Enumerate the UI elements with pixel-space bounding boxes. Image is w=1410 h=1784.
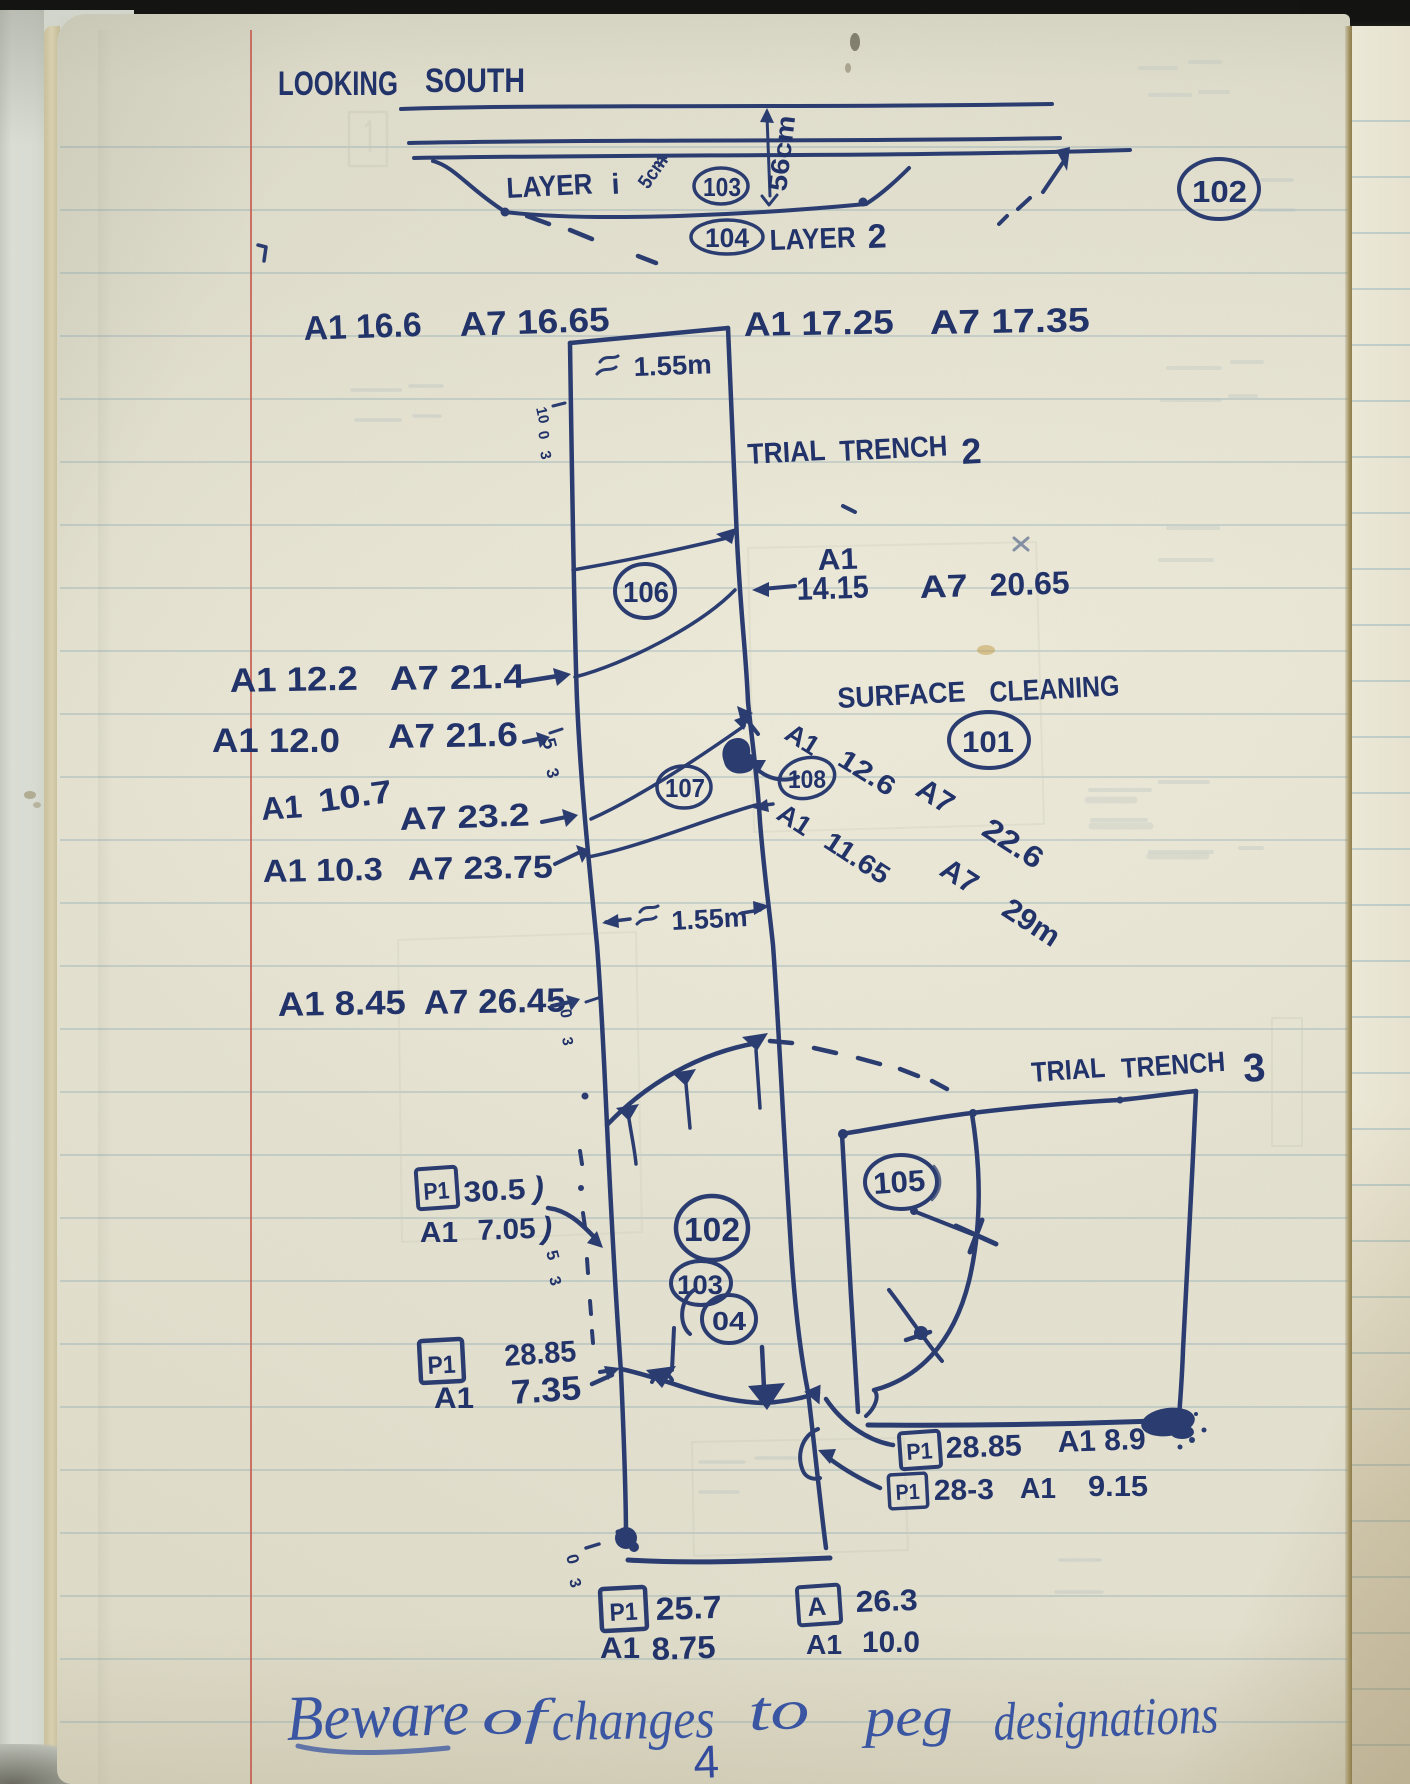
svg-text:): )	[539, 1210, 557, 1247]
svg-text:28.85: 28.85	[945, 1429, 1022, 1465]
svg-text:A1: A1	[780, 718, 825, 762]
svg-text:TRIAL: TRIAL	[1030, 1052, 1106, 1088]
svg-text:4: 4	[693, 1735, 720, 1784]
svg-text:22.6: 22.6	[976, 812, 1049, 876]
svg-text:peg: peg	[860, 1685, 953, 1749]
svg-text:5: 5	[542, 1248, 563, 1262]
svg-text:A1 12.2: A1 12.2	[229, 660, 358, 700]
svg-text:2: 2	[960, 430, 982, 472]
svg-text:104: 104	[705, 223, 749, 253]
svg-text:A7: A7	[910, 772, 960, 821]
svg-text:P1: P1	[895, 1479, 920, 1505]
svg-text:A1 12.0: A1 12.0	[212, 722, 340, 760]
svg-text:designations: designations	[992, 1684, 1219, 1752]
svg-text:): )	[531, 1169, 548, 1206]
svg-text:of: of	[481, 1688, 557, 1745]
svg-text:A: A	[806, 1591, 827, 1622]
svg-text:20.65: 20.65	[989, 564, 1070, 603]
svg-text:A7 21.6: A7 21.6	[387, 716, 518, 756]
svg-text:A1 10.3: A1 10.3	[262, 851, 383, 889]
svg-text:changes: changes	[551, 1688, 715, 1753]
svg-text:0: 0	[556, 1008, 574, 1020]
svg-text:3: 3	[536, 449, 554, 461]
svg-text:12.6: 12.6	[833, 744, 901, 802]
svg-text:30.5: 30.5	[463, 1174, 527, 1209]
svg-text:1.55m: 1.55m	[633, 349, 712, 382]
svg-text:A7 23.75: A7 23.75	[407, 848, 553, 887]
svg-text:9.15: 9.15	[1088, 1471, 1148, 1503]
svg-text:3: 3	[565, 1577, 584, 1590]
svg-text:A7: A7	[919, 567, 968, 605]
svg-text:25.7: 25.7	[655, 1589, 722, 1627]
svg-text:3: 3	[1242, 1046, 1267, 1091]
svg-text:0: 0	[562, 1552, 583, 1566]
svg-text:26.3: 26.3	[855, 1584, 918, 1619]
svg-text:102: 102	[1192, 174, 1247, 209]
svg-text:TRIAL: TRIAL	[747, 435, 827, 471]
svg-text:101: 101	[962, 726, 1014, 759]
svg-text:TRENCH: TRENCH	[1120, 1046, 1226, 1084]
svg-text:A7 21.4: A7 21.4	[389, 658, 525, 698]
svg-text:7.35: 7.35	[510, 1369, 582, 1412]
svg-text:A1: A1	[420, 1217, 458, 1249]
svg-text:10: 10	[532, 405, 552, 425]
svg-text:to: to	[747, 1679, 810, 1743]
svg-text:2: 2	[867, 217, 887, 256]
svg-text:SURFACE: SURFACE	[837, 676, 966, 715]
svg-text:11.65: 11.65	[819, 826, 896, 890]
svg-text:P1: P1	[423, 1177, 451, 1206]
svg-text:108: 108	[788, 766, 826, 794]
svg-text:A7 23.2: A7 23.2	[399, 796, 530, 837]
svg-text:A1: A1	[772, 798, 817, 842]
svg-text:A7: A7	[934, 852, 984, 901]
svg-text:P1: P1	[609, 1598, 639, 1627]
svg-text:7.05: 7.05	[477, 1213, 536, 1247]
svg-text:P1: P1	[427, 1351, 457, 1380]
svg-text:A1: A1	[260, 788, 303, 827]
svg-text:8.75: 8.75	[651, 1629, 716, 1667]
svg-text:A1: A1	[806, 1629, 842, 1660]
svg-text:A1: A1	[1020, 1473, 1056, 1505]
svg-text:28.85: 28.85	[503, 1335, 577, 1373]
svg-text:29m: 29m	[996, 892, 1066, 953]
svg-text:A1 16.6: A1 16.6	[303, 306, 422, 348]
svg-text:103: 103	[703, 172, 741, 202]
svg-text:A1 17.25: A1 17.25	[743, 303, 894, 344]
svg-text:106: 106	[623, 577, 669, 609]
svg-text:3: 3	[545, 1275, 564, 1288]
svg-text:28-3: 28-3	[934, 1474, 995, 1507]
svg-text:A1: A1	[600, 1632, 640, 1665]
svg-text:10.0: 10.0	[862, 1626, 920, 1659]
svg-text:1.55m: 1.55m	[671, 902, 748, 936]
svg-text:A7 17.35: A7 17.35	[929, 301, 1090, 342]
svg-text:CLEANING: CLEANING	[989, 670, 1120, 709]
svg-text:SOUTH: SOUTH	[425, 62, 525, 100]
svg-text:TRENCH: TRENCH	[839, 430, 949, 468]
svg-text:Beware: Beware	[285, 1677, 470, 1754]
svg-text:103: 103	[677, 1270, 723, 1300]
svg-text:107: 107	[665, 773, 705, 803]
svg-text:LAYER: LAYER	[506, 169, 594, 205]
svg-text:3: 3	[542, 766, 563, 780]
svg-text:i: i	[611, 169, 621, 201]
svg-text:0: 0	[534, 429, 552, 441]
svg-text:14.15: 14.15	[796, 569, 869, 607]
svg-text:A7 16.65: A7 16.65	[459, 301, 610, 344]
svg-text:LOOKING: LOOKING	[278, 65, 398, 103]
svg-text:04: 04	[712, 1306, 747, 1336]
svg-text:A1 8.45: A1 8.45	[277, 984, 406, 1024]
svg-text:A7 26.45: A7 26.45	[423, 982, 566, 1022]
svg-text:3: 3	[558, 1036, 576, 1047]
svg-text:10.7: 10.7	[316, 773, 394, 819]
svg-text:A1: A1	[434, 1382, 474, 1415]
svg-text:105: 105	[872, 1164, 926, 1201]
svg-text:A1 8.9: A1 8.9	[1057, 1423, 1146, 1459]
svg-text:102: 102	[684, 1211, 740, 1248]
svg-text:LAYER: LAYER	[769, 222, 856, 257]
svg-text:P1: P1	[906, 1437, 934, 1465]
